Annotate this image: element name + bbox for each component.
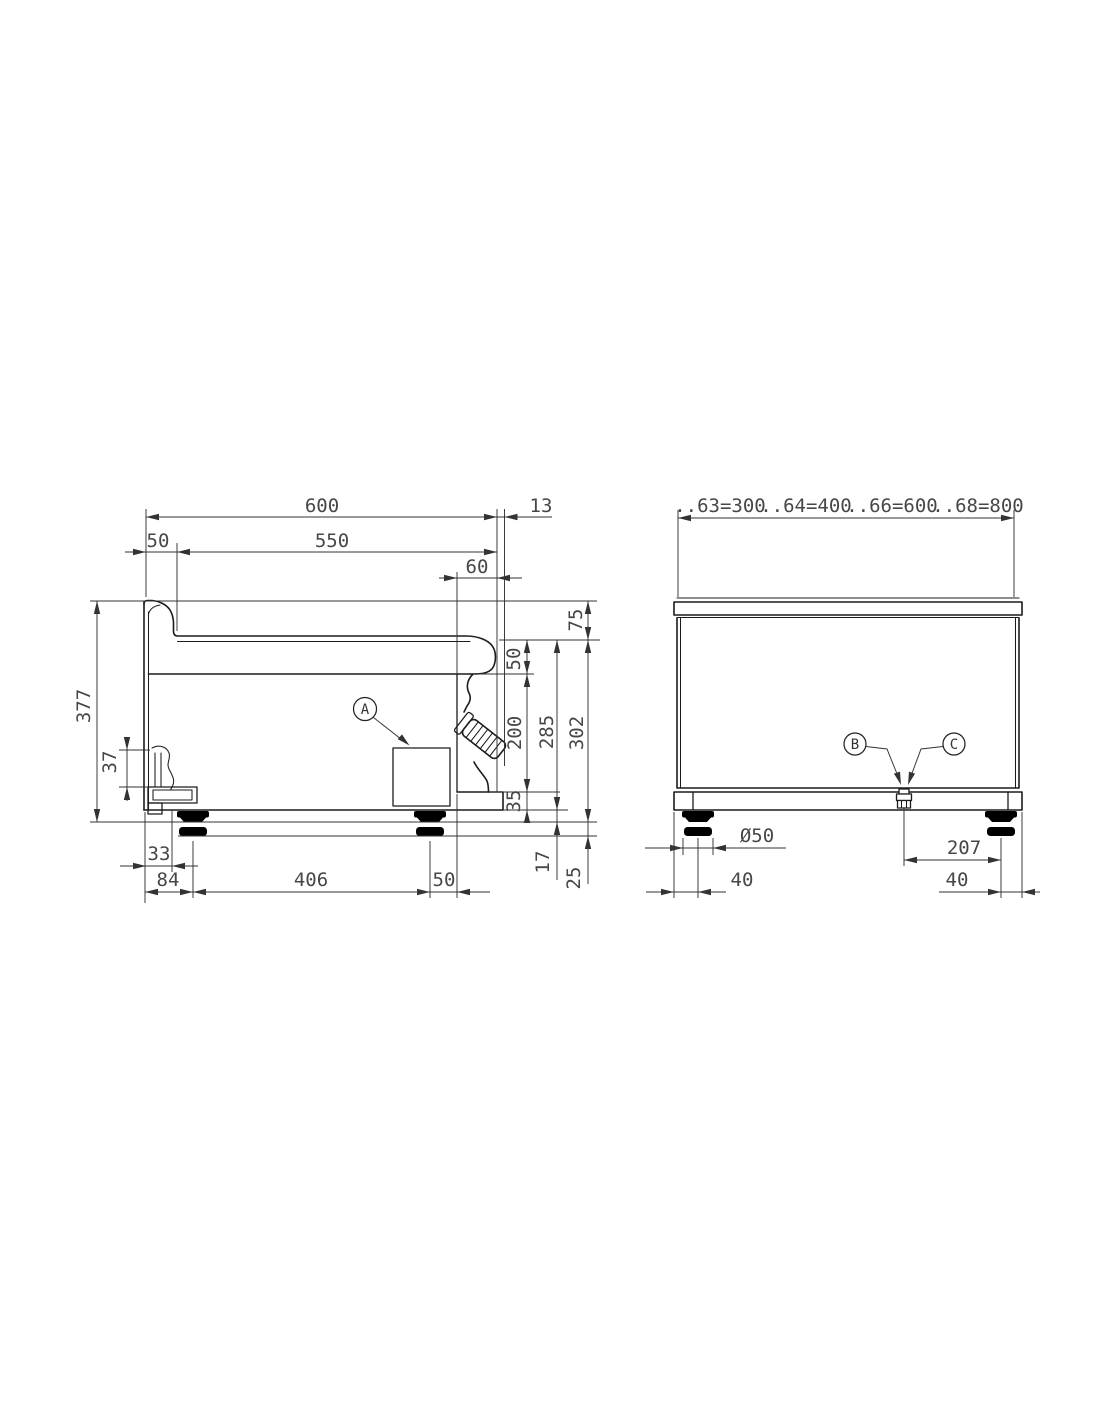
dim-front-offset: 13 <box>530 495 553 517</box>
front-view-dimensions: ..63=300 ..64=400 ..66=600 ..68=800 Ø50 … <box>645 495 1040 898</box>
dim-foot-min-height: 17 <box>532 851 554 874</box>
dim-depth-total: 600 <box>305 495 339 517</box>
rear-fitting <box>148 746 197 814</box>
front-top-band <box>674 602 1022 615</box>
rear-foot <box>177 811 209 822</box>
side-backsplash-inner-chamfer <box>149 605 161 614</box>
side-view <box>144 601 509 837</box>
callout-a-label: A <box>361 702 370 718</box>
front-view-left-foot-extended <box>684 822 712 836</box>
drawing-page: 600 13 50 550 60 377 37 75 302 25 <box>0 0 1100 1422</box>
callout-b: B <box>844 733 904 786</box>
dim-height-total: 377 <box>73 689 95 723</box>
dim-foot-adjustment: 25 <box>563 867 585 890</box>
component-box-a <box>393 748 450 806</box>
side-view-dimensions: 600 13 50 550 60 377 37 75 302 25 <box>73 495 600 903</box>
dim-width-variant-4: ..68=800 <box>932 495 1024 517</box>
gas-connection-fitting <box>897 789 912 808</box>
side-front-profile-upper <box>464 674 473 712</box>
rear-foot-extended <box>179 822 207 836</box>
front-foot-extended <box>416 822 444 836</box>
dim-front-foot-offset: 50 <box>433 869 456 891</box>
dim-splash-height: 75 <box>565 609 587 632</box>
front-base-rail <box>674 792 1022 810</box>
dim-left-foot-inset: 40 <box>731 869 754 891</box>
callout-b-label: B <box>851 737 859 753</box>
dim-width-variant-1: ..63=300 <box>674 495 766 517</box>
dim-foot-spacing: 406 <box>294 869 328 891</box>
dim-width-variant-3: ..66=600 <box>846 495 938 517</box>
front-view-right-foot <box>985 811 1017 822</box>
callout-c: C <box>905 733 965 786</box>
callout-a: A <box>354 698 412 748</box>
dim-fitting-offset: 33 <box>148 843 171 865</box>
dim-recess-height: 35 <box>503 790 525 813</box>
dim-connection-to-foot: 207 <box>947 837 981 859</box>
front-base-end-blocks <box>693 792 1008 810</box>
callout-c-label: C <box>950 737 958 753</box>
front-view-left-foot <box>682 811 714 822</box>
front-foot <box>414 811 446 822</box>
side-front-ledge <box>457 792 503 810</box>
side-top-profile <box>144 601 495 675</box>
dim-panel-height: 200 <box>504 716 526 750</box>
technical-drawing: 600 13 50 550 60 377 37 75 302 25 <box>0 0 1100 1422</box>
front-body-inner-lines <box>681 618 1016 788</box>
dim-plate-drop: 50 <box>503 648 525 671</box>
dim-rear-foot-offset: 84 <box>157 869 180 891</box>
dim-right-foot-inset: 40 <box>946 869 969 891</box>
dim-fitting-height: 37 <box>99 751 121 774</box>
dim-surface-depth: 550 <box>315 530 349 552</box>
dim-height-to-base: 285 <box>536 715 558 749</box>
control-knob <box>454 712 509 762</box>
dim-control-inset: 60 <box>466 556 489 578</box>
dim-height-to-floor: 302 <box>566 716 588 750</box>
front-body-outline <box>677 618 1019 788</box>
front-view <box>674 598 1022 836</box>
dim-width-variant-2: ..64=400 <box>760 495 852 517</box>
front-view-right-foot-extended <box>987 822 1015 836</box>
dim-foot-diameter: Ø50 <box>740 825 774 847</box>
side-front-profile-lower <box>474 762 489 792</box>
dim-back-inset: 50 <box>147 530 170 552</box>
